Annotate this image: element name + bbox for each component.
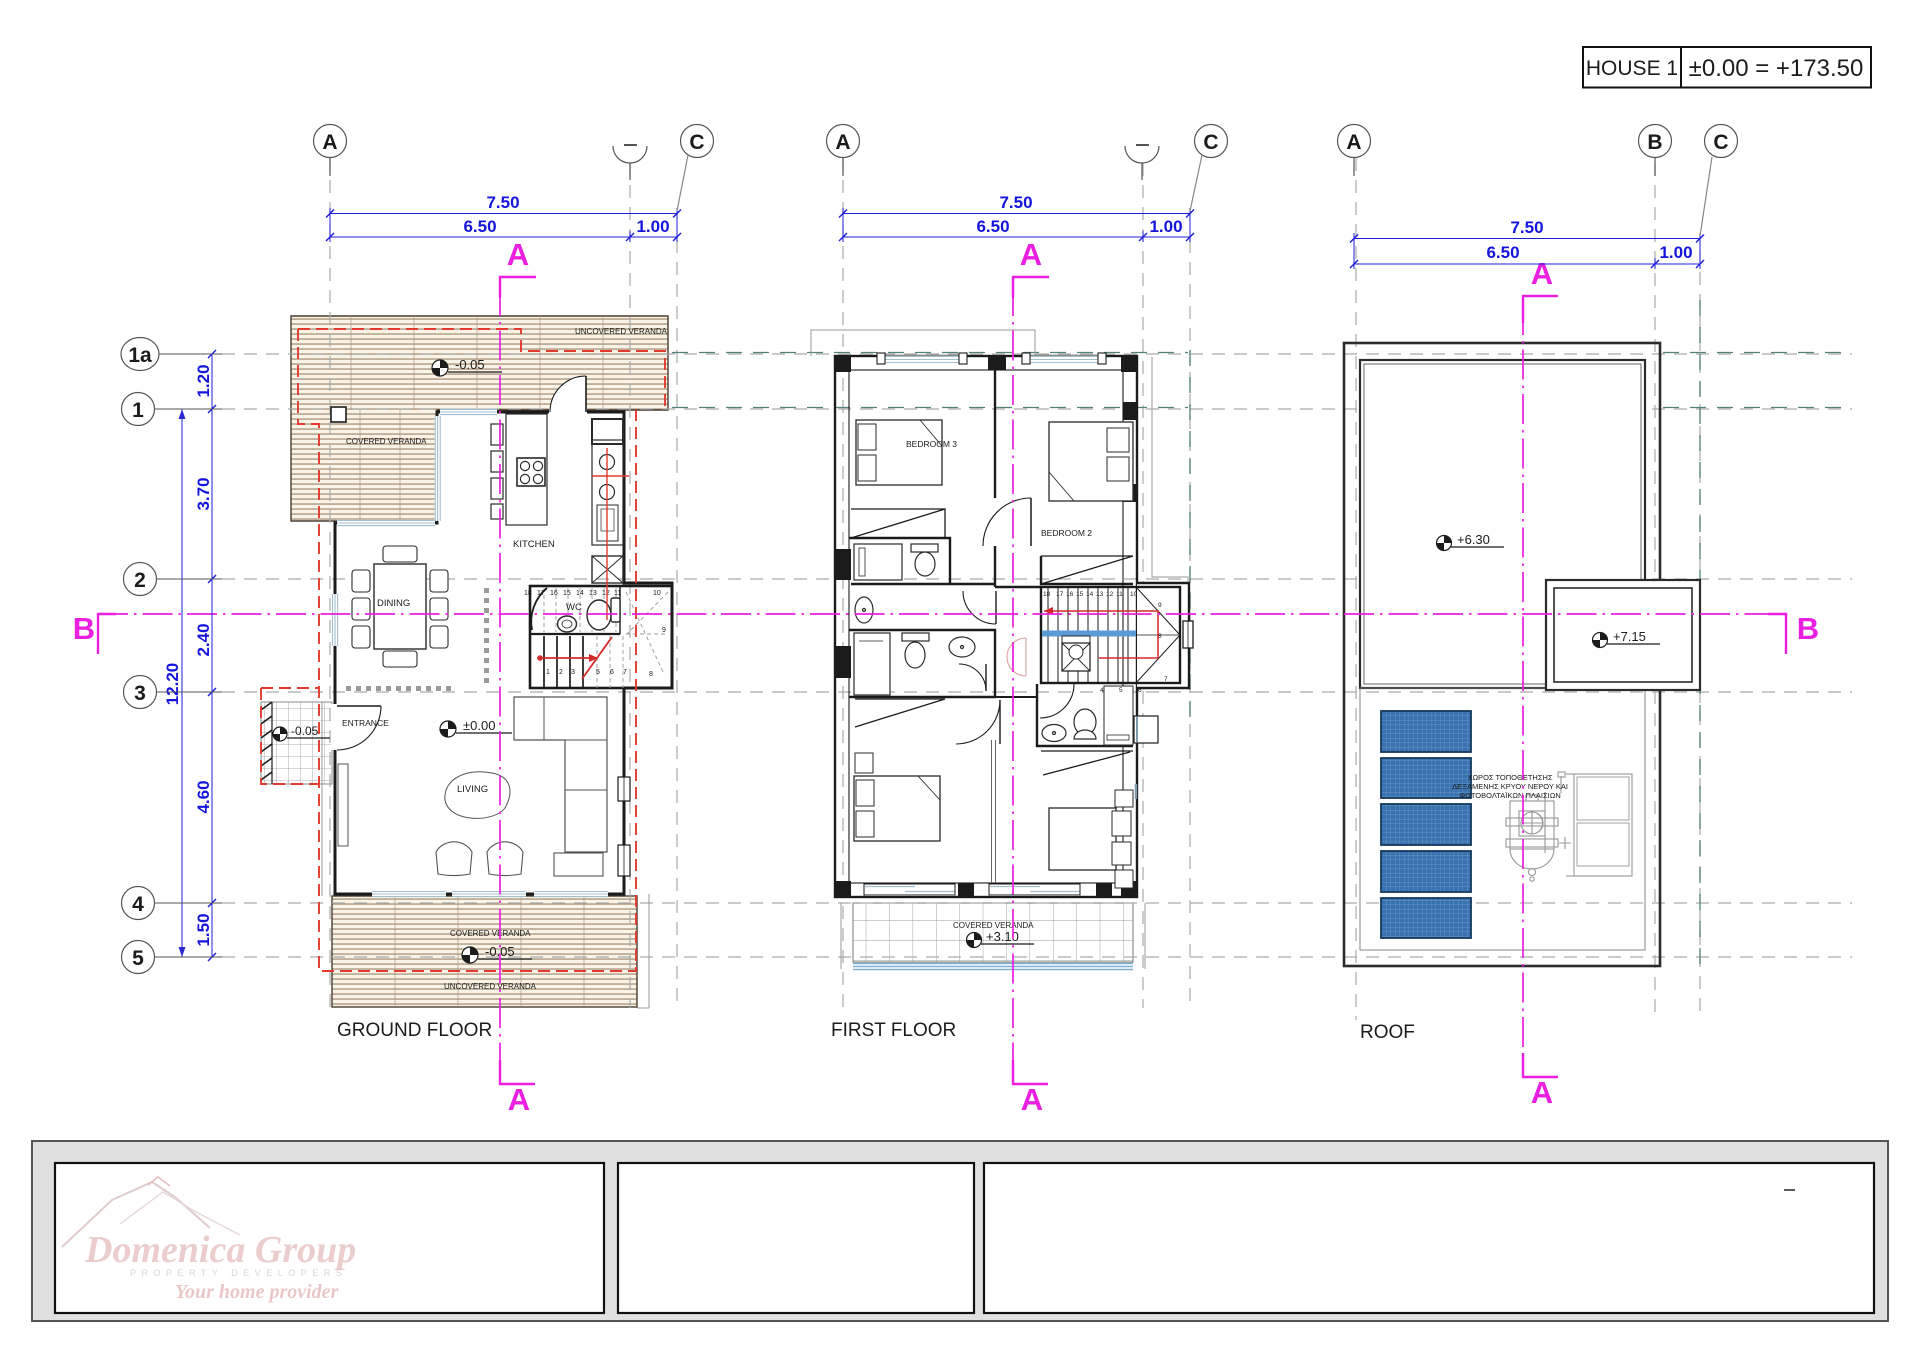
svg-text:1.00: 1.00 (1149, 217, 1182, 236)
svg-text:7.50: 7.50 (1510, 218, 1543, 237)
svg-text:B: B (1797, 611, 1819, 646)
svg-text:10: 10 (1130, 591, 1138, 598)
svg-text:1: 1 (546, 669, 550, 676)
svg-text:8: 8 (649, 671, 653, 678)
svg-text:14: 14 (1086, 591, 1094, 598)
svg-text:ROOF: ROOF (1360, 1022, 1415, 1043)
svg-text:3: 3 (134, 682, 146, 705)
svg-text:BEDROOM 2: BEDROOM 2 (1041, 528, 1092, 538)
svg-text:GROUND FLOOR: GROUND FLOOR (337, 1020, 492, 1041)
svg-text:7: 7 (623, 669, 627, 676)
svg-text:6.50: 6.50 (976, 217, 1009, 236)
svg-text:3.70: 3.70 (194, 477, 213, 510)
svg-text:7.50: 7.50 (486, 193, 519, 212)
svg-text:11: 11 (1116, 591, 1123, 598)
svg-text:1: 1 (132, 399, 144, 422)
svg-text:FIRST FLOOR: FIRST FLOOR (831, 1020, 956, 1041)
svg-text:HOUSE 1: HOUSE 1 (1586, 57, 1678, 80)
svg-text:B: B (1647, 131, 1662, 154)
svg-text:UNCOVERED VERANDA: UNCOVERED VERANDA (444, 982, 537, 991)
svg-text:1.00: 1.00 (636, 217, 669, 236)
svg-text:LIVING: LIVING (457, 784, 488, 795)
svg-text:12.20: 12.20 (163, 663, 182, 706)
svg-text:A: A (1021, 1082, 1043, 1117)
svg-text:9: 9 (662, 627, 666, 634)
svg-text:+3.10: +3.10 (986, 929, 1019, 944)
svg-text:C: C (1713, 131, 1728, 154)
svg-text:2: 2 (134, 569, 146, 592)
svg-text:7.50: 7.50 (999, 193, 1032, 212)
svg-text:2.40: 2.40 (194, 623, 213, 656)
svg-text:6: 6 (610, 669, 614, 676)
svg-text:C: C (689, 131, 704, 154)
svg-text:Domenica Group: Domenica Group (84, 1229, 356, 1271)
svg-text:±0.00: ±0.00 (463, 718, 495, 733)
svg-text:1.50: 1.50 (194, 913, 213, 946)
svg-text:18: 18 (1043, 591, 1051, 598)
svg-text:A: A (1346, 131, 1361, 154)
svg-text:12: 12 (1106, 591, 1114, 598)
svg-text:5: 5 (132, 947, 144, 970)
svg-text:A: A (507, 237, 529, 272)
svg-text:-0.05: -0.05 (291, 724, 319, 738)
svg-text:DINING: DINING (377, 598, 410, 609)
svg-text:1.00: 1.00 (1659, 243, 1692, 262)
svg-text:A: A (508, 1082, 530, 1117)
svg-text:4.60: 4.60 (194, 780, 213, 813)
svg-text:A: A (322, 131, 337, 154)
svg-text:-0.05: -0.05 (455, 357, 485, 372)
svg-text:ENTRANCE: ENTRANCE (342, 718, 389, 728)
svg-text:10: 10 (653, 590, 661, 597)
svg-text:17: 17 (1056, 591, 1064, 598)
svg-text:A: A (1020, 237, 1042, 272)
svg-text:PROPERTY DEVELOPERS: PROPERTY DEVELOPERS (130, 1268, 347, 1278)
svg-text:18: 18 (524, 590, 532, 597)
svg-text:1a: 1a (128, 344, 152, 367)
svg-text:15: 15 (1076, 591, 1084, 598)
svg-text:ΦΩΤΟΒΟΛΤΑΪΚΩΝ ΠΛΑΙΣΙΩΝ: ΦΩΤΟΒΟΛΤΑΪΚΩΝ ΠΛΑΙΣΙΩΝ (1459, 791, 1561, 800)
svg-text:16: 16 (550, 590, 558, 597)
svg-text:9: 9 (1158, 602, 1162, 609)
svg-text:6: 6 (1138, 687, 1142, 694)
svg-text:4: 4 (132, 893, 144, 916)
svg-text:13: 13 (589, 590, 597, 597)
svg-text:13: 13 (1096, 591, 1104, 598)
svg-text:Your home provider: Your home provider (175, 1281, 339, 1303)
svg-text:1.20: 1.20 (194, 364, 213, 397)
svg-text:14: 14 (576, 590, 584, 597)
svg-text:A: A (835, 131, 850, 154)
svg-text:WC: WC (566, 602, 582, 613)
svg-text:12: 12 (602, 590, 610, 597)
svg-text:5: 5 (596, 669, 600, 676)
svg-text:2: 2 (559, 669, 563, 676)
svg-text:A: A (1531, 256, 1553, 291)
svg-text:+7.15: +7.15 (1613, 629, 1646, 644)
svg-text:B: B (73, 611, 95, 646)
svg-text:±0.00 = +173.50: ±0.00 = +173.50 (1689, 55, 1864, 82)
svg-text:BEDROOM 3: BEDROOM 3 (906, 439, 957, 449)
svg-text:4: 4 (1100, 687, 1104, 694)
svg-text:COVERED VERANDA: COVERED VERANDA (346, 437, 427, 446)
svg-text:A: A (1531, 1075, 1553, 1110)
svg-text:11: 11 (614, 590, 621, 597)
svg-text:ΧΩΡΟΣ ΤΟΠΟΘΕΤΗΣΗΣ: ΧΩΡΟΣ ΤΟΠΟΘΕΤΗΣΗΣ (1467, 773, 1552, 782)
svg-text:5: 5 (1119, 687, 1123, 694)
svg-text:C: C (1203, 131, 1218, 154)
svg-text:6.50: 6.50 (1486, 243, 1519, 262)
svg-text:COVERED VERANDA: COVERED VERANDA (450, 929, 531, 938)
svg-text:6.50: 6.50 (463, 217, 496, 236)
svg-text:16: 16 (1066, 591, 1074, 598)
svg-text:15: 15 (563, 590, 571, 597)
svg-text:3: 3 (571, 669, 575, 676)
svg-text:7: 7 (1164, 676, 1168, 683)
svg-text:ΔΕΞΑΜΕΝΗΣ ΚΡΥΟΥ ΝΕΡΟΥ ΚΑΙ: ΔΕΞΑΜΕΝΗΣ ΚΡΥΟΥ ΝΕΡΟΥ ΚΑΙ (1452, 782, 1568, 791)
svg-text:KITCHEN: KITCHEN (513, 539, 555, 550)
svg-text:UNCOVERED VERANDA: UNCOVERED VERANDA (575, 327, 668, 336)
svg-text:17: 17 (537, 590, 545, 597)
svg-text:+6.30: +6.30 (1457, 532, 1490, 547)
